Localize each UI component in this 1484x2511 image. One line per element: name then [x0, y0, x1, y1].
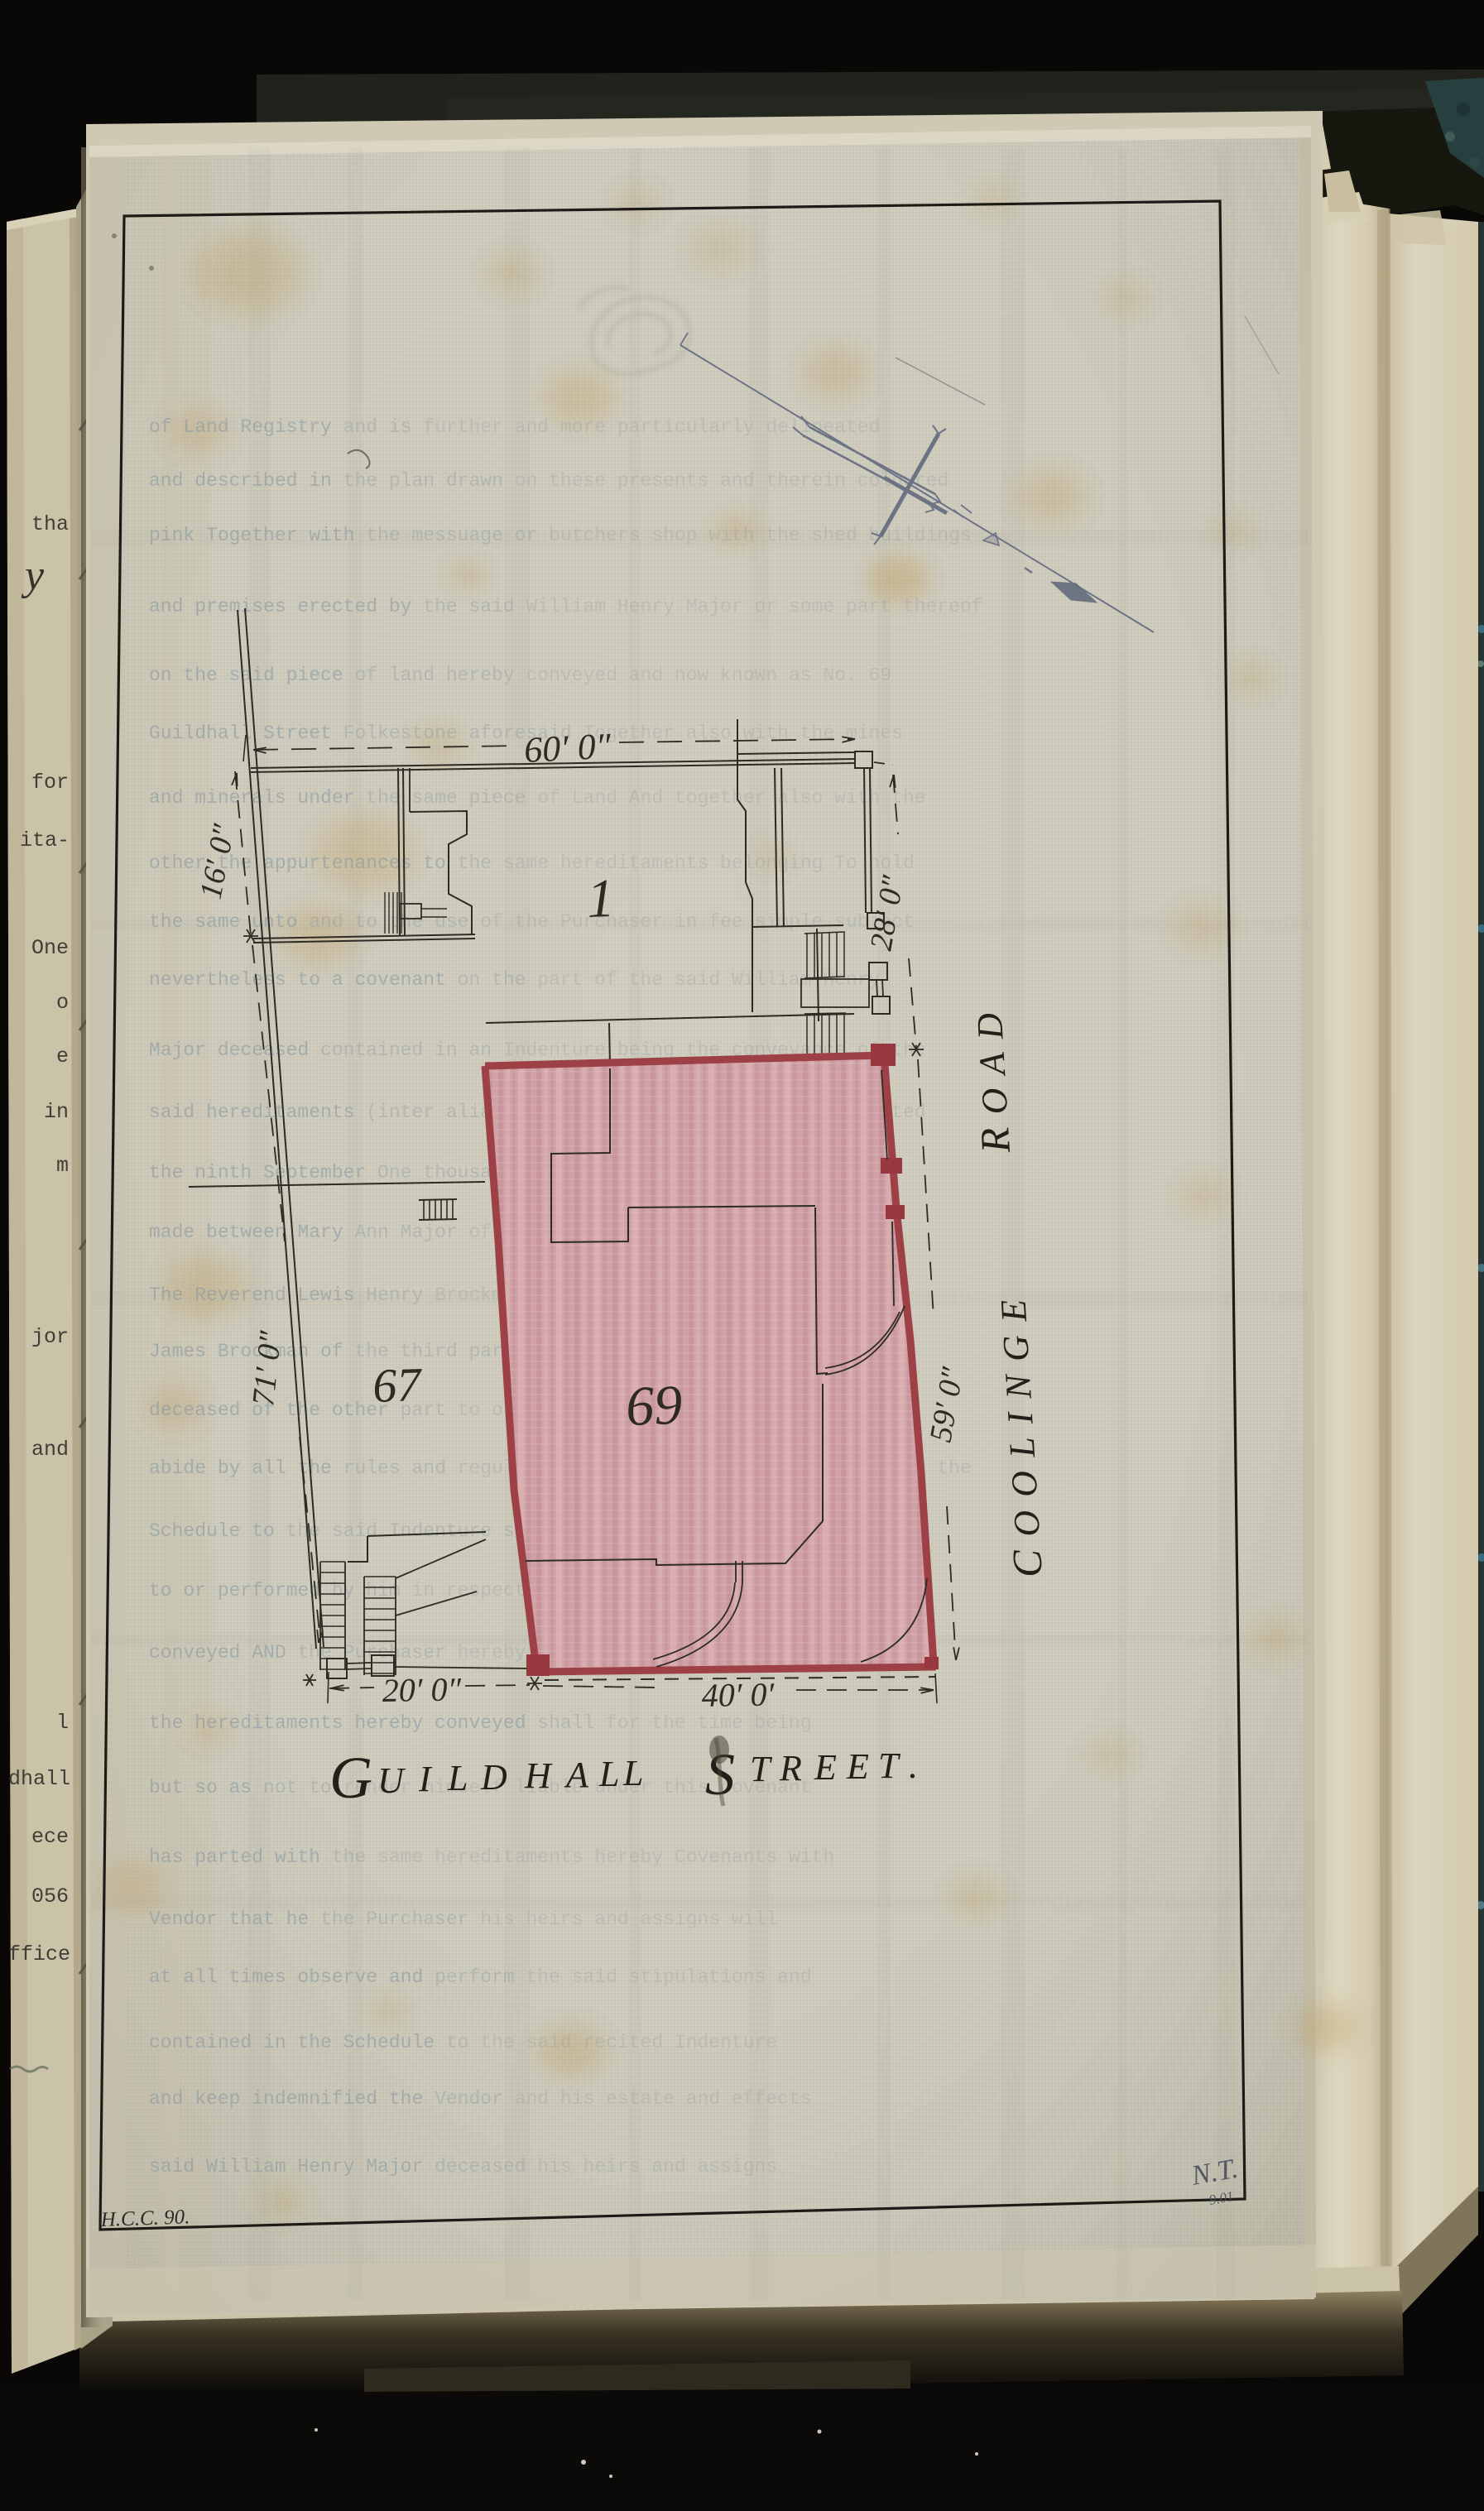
svg-text:has parted with the same hered: has parted with the same hereditaments h… [149, 1846, 834, 1868]
svg-text:R: R [779, 1748, 802, 1788]
svg-text:nevertheless to a covenant on: nevertheless to a covenant on the part o… [149, 969, 881, 991]
svg-text:of Land Registry and is furthe: of Land Registry and is further and more… [149, 416, 880, 438]
svg-text:the same unto and to the use o: the same unto and to the use of the Purc… [149, 911, 915, 933]
svg-text:tha: tha [31, 512, 69, 536]
svg-text:and: and [31, 1438, 69, 1462]
svg-text:for: for [31, 771, 69, 795]
svg-text:T: T [750, 1749, 773, 1789]
svg-text:1: 1 [586, 868, 616, 929]
svg-text:o: o [56, 991, 69, 1015]
svg-text:H: H [524, 1755, 553, 1796]
svg-text:said William Henry Major decea: said William Henry Major deceased his he… [149, 2156, 777, 2177]
svg-text:I: I [418, 1759, 433, 1799]
svg-text:ece: ece [31, 1825, 69, 1849]
svg-text:e: e [56, 1044, 69, 1068]
svg-text:m: m [56, 1154, 69, 1178]
svg-text:Vendor that he the Purchaser h: Vendor that he the Purchaser his heirs a… [149, 1908, 777, 1930]
svg-text:and minerals under the same pi: and minerals under the same piece of Lan… [149, 787, 926, 809]
svg-text:ita-: ita- [20, 828, 70, 852]
svg-text:on the said piece of land here: on the said piece of land hereby conveye… [149, 665, 891, 686]
svg-text:056: 056 [31, 1884, 69, 1908]
svg-text:pink Together with the messuag: pink Together with the messuage or butch… [149, 525, 972, 546]
svg-text:G: G [329, 1745, 372, 1811]
svg-text:L: L [598, 1754, 619, 1794]
svg-text:One: One [31, 936, 69, 960]
svg-text:L: L [622, 1753, 643, 1793]
svg-text:and described in the plan draw: and described in the plan drawn on these… [149, 470, 949, 492]
svg-text:T: T [878, 1745, 901, 1786]
svg-text:E: E [846, 1746, 869, 1787]
svg-text:A: A [564, 1755, 589, 1795]
svg-text:40′ 0′: 40′ 0′ [701, 1675, 776, 1714]
svg-text:E: E [814, 1747, 837, 1788]
svg-text:dhall: dhall [8, 1767, 70, 1791]
svg-text:ffice: ffice [8, 1942, 70, 1966]
svg-text:contained in the Schedule to t: contained in the Schedule to the said re… [149, 2032, 777, 2053]
svg-text:and premises erected by the sa: and premises erected by the said William… [149, 596, 983, 617]
svg-text:at all times observe and perfo: at all times observe and perform the sai… [149, 1966, 812, 1988]
svg-text:and keep indemnified the Vendo: and keep indemnified the Vendor and his … [149, 2088, 812, 2110]
svg-text:the hereditaments hereby conve: the hereditaments hereby conveyed shall … [149, 1712, 812, 1734]
svg-text:69: 69 [625, 1373, 684, 1438]
svg-text:y: y [21, 552, 45, 599]
svg-text:U: U [377, 1760, 406, 1801]
svg-text:60′ 0″: 60′ 0″ [523, 726, 612, 771]
svg-text:H.C.C. 90.: H.C.C. 90. [99, 2206, 190, 2231]
svg-text:D: D [480, 1757, 507, 1798]
svg-text:20′ 0″: 20′ 0″ [382, 1670, 463, 1709]
svg-text:67: 67 [372, 1357, 423, 1413]
svg-text:L: L [447, 1758, 468, 1798]
svg-text:l: l [56, 1711, 69, 1735]
svg-text:.: . [909, 1745, 918, 1786]
svg-text:in: in [44, 1100, 69, 1124]
svg-text:jor: jor [31, 1325, 69, 1349]
